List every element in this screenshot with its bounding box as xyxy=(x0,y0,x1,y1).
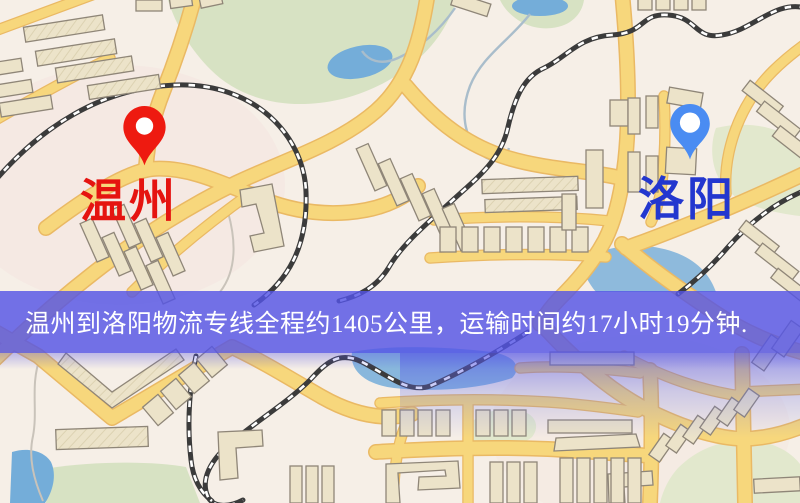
origin-pin[interactable] xyxy=(121,104,168,168)
route-banner: 温州到洛阳物流专线全程约1405公里，运输时间约17小时19分钟. xyxy=(0,291,800,353)
destination-pin[interactable] xyxy=(668,102,712,162)
route-banner-text: 温州到洛阳物流专线全程约1405公里，运输时间约17小时19分钟. xyxy=(0,304,748,340)
map-canvas[interactable]: 温州 洛阳 温州到洛阳物流专线全程约1405公里，运输时间约17小时19分钟. xyxy=(0,0,800,503)
origin-label: 温州 xyxy=(80,178,178,224)
map-image xyxy=(0,0,800,503)
destination-label: 洛阳 xyxy=(638,176,736,222)
